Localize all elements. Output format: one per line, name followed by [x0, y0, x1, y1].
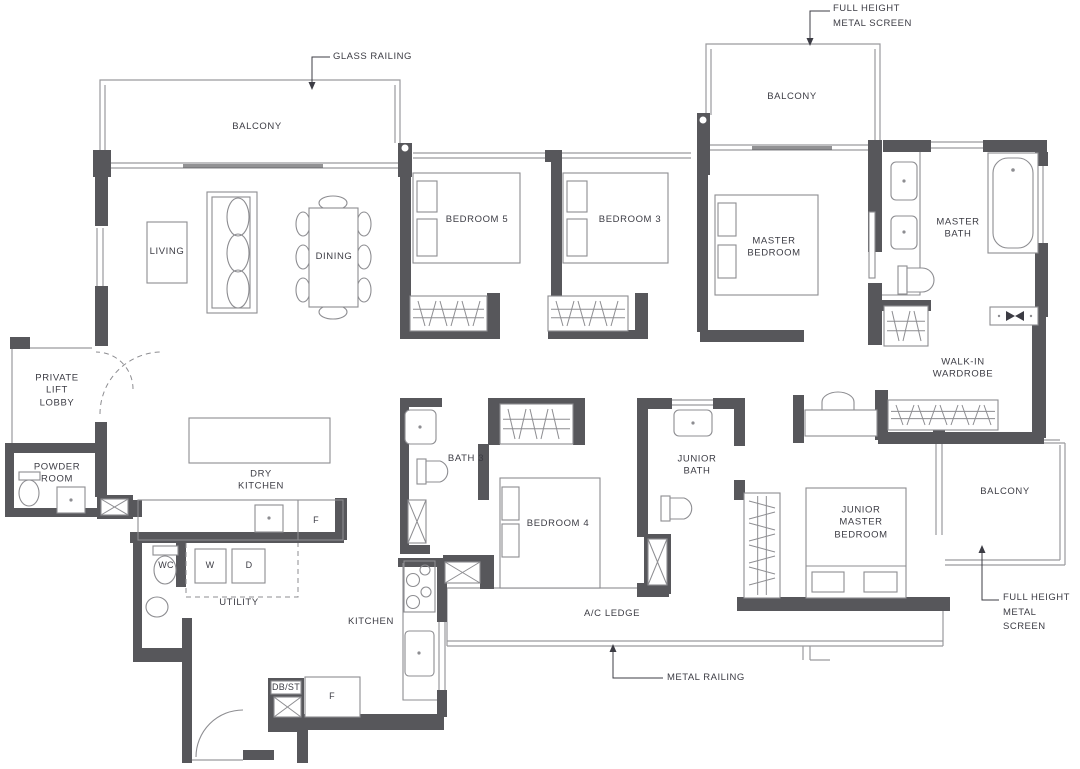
master-bath-top-window — [931, 142, 983, 148]
dining-table-set — [296, 196, 371, 319]
wardrobe-walkin-long — [888, 400, 998, 430]
master-toilet — [898, 266, 934, 294]
sofa — [207, 192, 257, 313]
shaft-bath3 — [408, 500, 426, 543]
master-bath-door-leaf — [869, 212, 875, 278]
powder-toilet — [19, 472, 40, 506]
leader-metal-screen-top — [810, 11, 830, 40]
bed-bedroom4 — [500, 478, 600, 588]
shaft-db-st — [274, 697, 301, 717]
glass-railing-top-left — [100, 80, 400, 168]
bath3-toilet — [417, 459, 448, 484]
utility-sink — [146, 597, 168, 617]
entrance-door-arc — [196, 710, 243, 757]
wardrobe-walkin-side — [884, 306, 928, 346]
bedroom5-window — [413, 153, 545, 158]
leader-metal-railing — [613, 650, 663, 678]
bed-bedroom5 — [413, 173, 520, 263]
bed-master — [715, 195, 818, 295]
hinge-marker — [700, 117, 707, 124]
metal-screen-top-right — [706, 44, 880, 140]
washer-box — [195, 549, 226, 583]
bedroom3-window — [562, 153, 691, 158]
bed-junior-master — [806, 488, 906, 598]
bed-bedroom3 — [563, 173, 668, 263]
kitchen-window — [439, 622, 445, 690]
floorplan-geometry — [0, 0, 1080, 769]
junior-bath-window — [672, 400, 713, 405]
dryer-box — [232, 549, 265, 583]
tv-console — [147, 222, 187, 283]
db-st-box — [271, 681, 301, 694]
hinge-marker — [402, 145, 409, 152]
dry-kitchen-island — [189, 418, 330, 463]
shaft-junior-bath — [648, 539, 667, 585]
wardrobe-bedroom5 — [410, 296, 487, 331]
kitchen-sink — [405, 631, 434, 676]
bathtub — [988, 153, 1038, 253]
junior-master-window — [936, 440, 942, 535]
walkin-bench — [990, 307, 1038, 325]
leader-metal-screen-bottom — [982, 551, 999, 600]
shaft-powder — [101, 499, 128, 515]
kitchen-fridge — [305, 677, 360, 717]
living-window — [97, 228, 103, 286]
wardrobe-bedroom3 — [548, 296, 628, 331]
wardrobe-bedroom4 — [500, 404, 573, 444]
kitchen-hob — [404, 561, 435, 612]
metal-screen-right-balcony — [945, 443, 1065, 565]
wardrobe-junior-master — [744, 493, 780, 598]
floor-plan: BALCONY BALCONY BALCONY LIVING DINING BE… — [0, 0, 1080, 769]
utility-toilet — [153, 546, 178, 584]
lobby-door-arc — [100, 352, 162, 414]
lobby-door-arc-small — [96, 352, 133, 389]
shaft-kitchen — [445, 562, 480, 583]
junior-bath-toilet — [661, 496, 692, 521]
vanity-desk — [805, 392, 877, 436]
lift-lobby-outline — [12, 348, 92, 445]
